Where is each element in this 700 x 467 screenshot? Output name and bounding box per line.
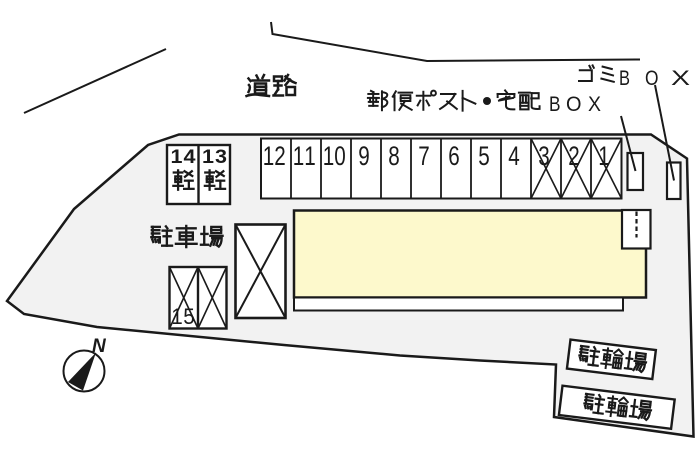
svg-text:9: 9 <box>358 141 370 171</box>
svg-text:5: 5 <box>183 304 195 329</box>
svg-text:1: 1 <box>202 147 214 168</box>
svg-text:8: 8 <box>388 141 400 171</box>
svg-text:X: X <box>671 66 690 90</box>
svg-text:1: 1 <box>304 141 316 171</box>
svg-text:X: X <box>588 92 601 116</box>
svg-text:1: 1 <box>293 141 305 171</box>
svg-text:4: 4 <box>508 141 520 171</box>
svg-text:2: 2 <box>274 141 286 171</box>
svg-text:0: 0 <box>334 141 346 171</box>
svg-text:7: 7 <box>418 141 430 171</box>
svg-text:3: 3 <box>538 141 550 171</box>
svg-text:1: 1 <box>171 304 183 329</box>
svg-text:4: 4 <box>184 147 196 168</box>
svg-text:1: 1 <box>323 141 335 171</box>
svg-text:N: N <box>92 336 107 357</box>
svg-text:3: 3 <box>215 147 227 168</box>
svg-text:B: B <box>619 66 630 90</box>
svg-text:O: O <box>566 92 582 116</box>
svg-text:5: 5 <box>478 141 490 171</box>
svg-text:1: 1 <box>598 141 610 171</box>
svg-text:O: O <box>645 66 659 90</box>
svg-text:1: 1 <box>263 141 275 171</box>
svg-text:B: B <box>549 92 561 116</box>
svg-text:6: 6 <box>448 141 460 171</box>
svg-text:2: 2 <box>568 141 580 171</box>
svg-text:1: 1 <box>171 147 183 168</box>
